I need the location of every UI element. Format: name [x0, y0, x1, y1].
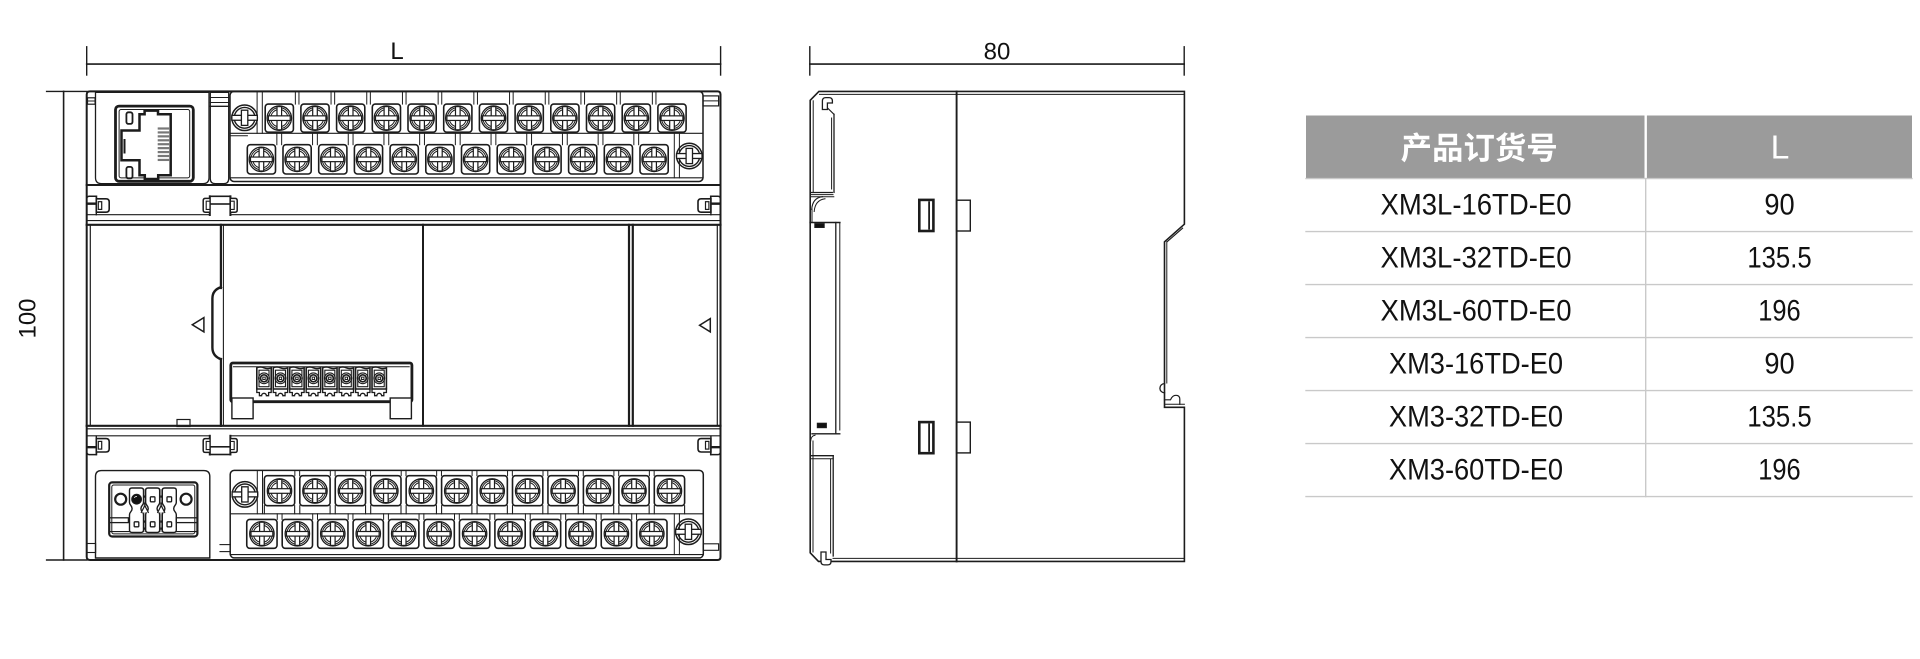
svg-text:135.5: 135.5 [1747, 241, 1811, 274]
svg-text:XM3L-32TD-E0: XM3L-32TD-E0 [1381, 241, 1572, 274]
svg-text:196: 196 [1758, 453, 1800, 486]
svg-text:XM3L-60TD-E0: XM3L-60TD-E0 [1381, 294, 1572, 327]
svg-text:196: 196 [1758, 294, 1800, 327]
svg-text:XM3-60TD-E0: XM3-60TD-E0 [1389, 453, 1563, 486]
svg-text:100: 100 [15, 298, 42, 338]
svg-text:XM3-16TD-E0: XM3-16TD-E0 [1389, 347, 1563, 380]
svg-text:80: 80 [984, 39, 1011, 66]
svg-text:90: 90 [1764, 347, 1794, 380]
svg-text:XM3-32TD-E0: XM3-32TD-E0 [1389, 400, 1563, 433]
svg-text:135.5: 135.5 [1747, 400, 1811, 433]
svg-text:90: 90 [1764, 188, 1794, 221]
svg-text:L: L [390, 38, 403, 65]
svg-text:L: L [1771, 129, 1790, 167]
svg-text:XM3L-16TD-E0: XM3L-16TD-E0 [1381, 188, 1572, 221]
